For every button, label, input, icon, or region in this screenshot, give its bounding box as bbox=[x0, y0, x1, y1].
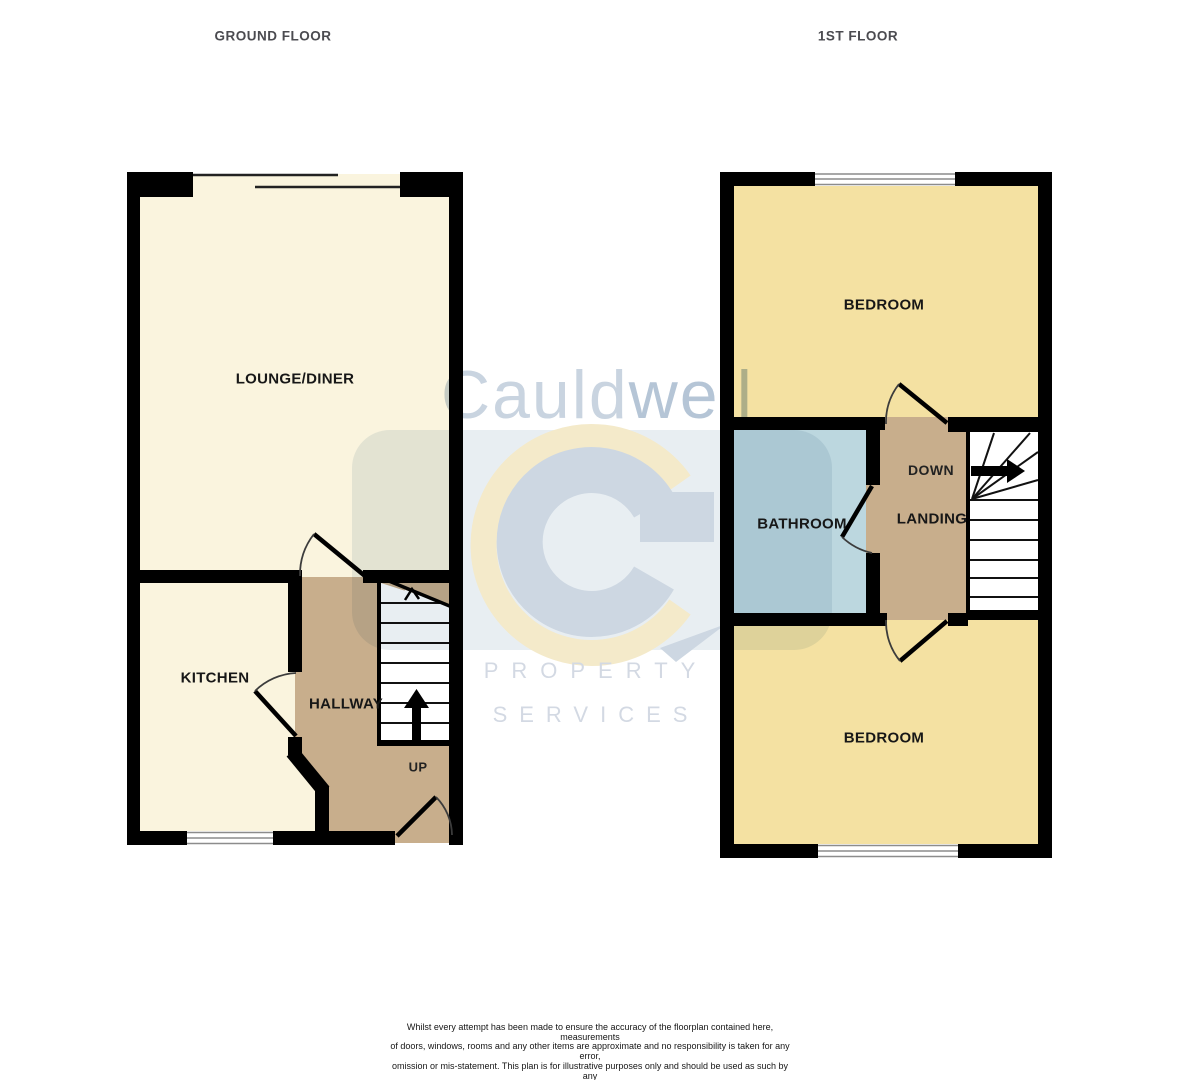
floorplan-drawing bbox=[0, 0, 1180, 1080]
disclaimer: Whilst every attempt has been made to en… bbox=[390, 1023, 790, 1080]
bedroom-top-window bbox=[815, 172, 955, 186]
landing-label: LANDING bbox=[897, 511, 967, 528]
bedroom-bottom-window bbox=[818, 844, 958, 858]
ground-floor-plan bbox=[127, 172, 463, 845]
kitchen-window bbox=[187, 831, 273, 845]
up-label: UP bbox=[409, 760, 428, 775]
disclaimer-line: of doors, windows, rooms and any other i… bbox=[390, 1042, 790, 1061]
down-label: DOWN bbox=[908, 462, 954, 478]
bedroom-bottom-label: BEDROOM bbox=[844, 730, 924, 747]
ground-floor-title: GROUND FLOOR bbox=[215, 29, 332, 44]
disclaimer-line: Whilst every attempt has been made to en… bbox=[390, 1023, 790, 1042]
kitchen-label: KITCHEN bbox=[181, 670, 250, 687]
entrance-threshold bbox=[395, 831, 452, 843]
hallway-label: HALLWAY bbox=[309, 696, 383, 713]
floorplan-canvas: Cauldwell PROPERTY SERVICES GROUND FLOOR… bbox=[0, 0, 1180, 1080]
staircase-down bbox=[970, 430, 1038, 612]
first-floor-title: 1ST FLOOR bbox=[818, 29, 898, 44]
disclaimer-line: omission or mis-statement. This plan is … bbox=[390, 1062, 790, 1080]
bedroom-top-label: BEDROOM bbox=[844, 297, 924, 314]
bathroom-label: BATHROOM bbox=[757, 516, 847, 533]
lounge-label: LOUNGE/DINER bbox=[236, 371, 355, 388]
